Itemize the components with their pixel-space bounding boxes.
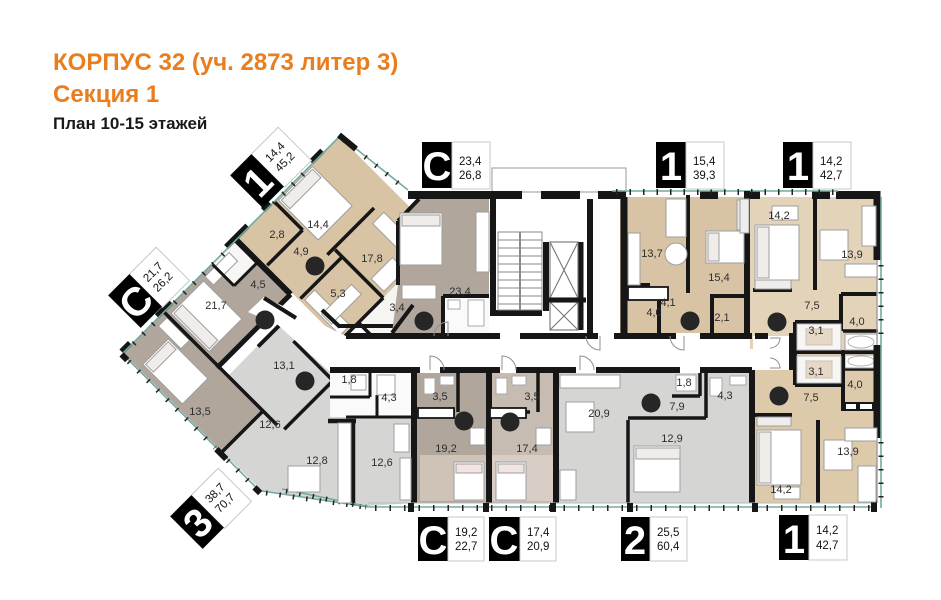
svg-text:21,7: 21,7 xyxy=(205,300,226,312)
svg-text:4,3: 4,3 xyxy=(381,392,396,404)
svg-text:С: С xyxy=(419,519,448,563)
svg-text:17,4: 17,4 xyxy=(516,443,537,455)
svg-text:КОРПУС 32 (уч. 2873 литер 3): КОРПУС 32 (уч. 2873 литер 3) xyxy=(53,49,398,76)
svg-text:3,1: 3,1 xyxy=(808,325,823,337)
svg-text:3,5: 3,5 xyxy=(432,391,447,403)
svg-text:23,4: 23,4 xyxy=(459,156,482,168)
svg-text:42,7: 42,7 xyxy=(820,170,842,182)
svg-text:22,7: 22,7 xyxy=(455,541,477,553)
svg-text:4,0: 4,0 xyxy=(847,379,862,391)
svg-text:15,4: 15,4 xyxy=(693,156,716,168)
svg-text:С: С xyxy=(423,145,452,189)
svg-text:13,9: 13,9 xyxy=(841,249,862,261)
svg-text:14,2: 14,2 xyxy=(816,525,838,537)
svg-text:13,7: 13,7 xyxy=(641,248,662,260)
svg-text:4,3: 4,3 xyxy=(717,390,732,402)
svg-text:14,2: 14,2 xyxy=(768,210,789,222)
svg-text:19,2: 19,2 xyxy=(435,443,456,455)
svg-text:7,5: 7,5 xyxy=(804,300,819,312)
svg-text:1: 1 xyxy=(787,145,809,189)
svg-text:5,3: 5,3 xyxy=(330,288,345,300)
svg-text:4,1: 4,1 xyxy=(660,297,675,309)
svg-text:4,0: 4,0 xyxy=(646,307,661,319)
svg-text:1: 1 xyxy=(783,518,805,562)
svg-text:1,8: 1,8 xyxy=(341,374,356,386)
svg-text:План 10-15 этажей: План 10-15 этажей xyxy=(53,114,207,133)
svg-text:25,5: 25,5 xyxy=(657,527,679,539)
svg-text:7,9: 7,9 xyxy=(669,401,684,413)
svg-text:3,4: 3,4 xyxy=(389,302,404,314)
svg-text:3,1: 3,1 xyxy=(808,366,823,378)
svg-text:23,4: 23,4 xyxy=(449,286,470,298)
svg-text:12,6: 12,6 xyxy=(371,457,392,469)
svg-text:42,7: 42,7 xyxy=(816,540,838,552)
svg-text:2,8: 2,8 xyxy=(269,229,284,241)
svg-text:4,9: 4,9 xyxy=(293,246,308,258)
svg-text:2: 2 xyxy=(624,519,646,563)
svg-text:14,2: 14,2 xyxy=(820,156,842,168)
svg-text:3,5: 3,5 xyxy=(524,391,539,403)
svg-text:60,4: 60,4 xyxy=(657,541,680,553)
svg-text:39,3: 39,3 xyxy=(693,170,715,182)
svg-text:14,2: 14,2 xyxy=(770,484,791,496)
svg-text:19,2: 19,2 xyxy=(455,527,477,539)
svg-text:20,9: 20,9 xyxy=(588,408,609,420)
svg-text:26,8: 26,8 xyxy=(459,170,481,182)
svg-text:17,8: 17,8 xyxy=(361,253,382,265)
svg-text:1: 1 xyxy=(660,145,682,189)
svg-text:14,4: 14,4 xyxy=(307,219,328,231)
svg-text:15,4: 15,4 xyxy=(708,272,729,284)
svg-text:17,4: 17,4 xyxy=(527,527,550,539)
svg-text:13,9: 13,9 xyxy=(837,446,858,458)
svg-text:13,5: 13,5 xyxy=(189,406,210,418)
svg-text:Секция 1: Секция 1 xyxy=(53,81,159,108)
svg-text:12,8: 12,8 xyxy=(306,455,327,467)
svg-text:1,8: 1,8 xyxy=(676,377,691,389)
svg-text:12,6: 12,6 xyxy=(259,419,280,431)
svg-text:12,9: 12,9 xyxy=(661,433,682,445)
svg-text:4,0: 4,0 xyxy=(849,316,864,328)
svg-text:С: С xyxy=(490,519,519,563)
svg-text:4,5: 4,5 xyxy=(250,279,265,291)
svg-text:2,1: 2,1 xyxy=(714,312,729,324)
svg-text:7,5: 7,5 xyxy=(803,392,818,404)
svg-text:13,1: 13,1 xyxy=(273,360,294,372)
svg-text:20,9: 20,9 xyxy=(527,541,549,553)
